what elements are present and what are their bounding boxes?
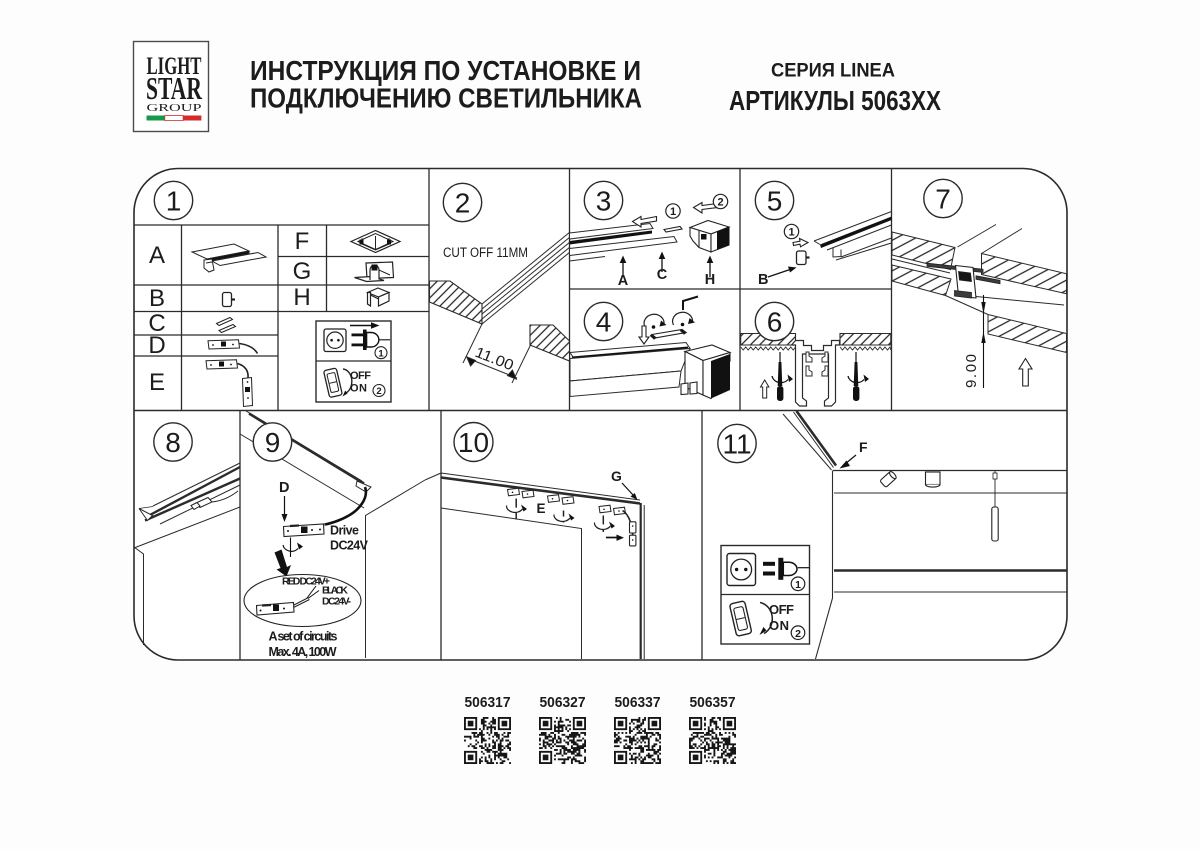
- svg-text:6: 6: [767, 307, 783, 338]
- svg-text:F: F: [859, 439, 868, 455]
- svg-text:DC24V-: DC24V-: [322, 596, 352, 608]
- svg-text:GROUP: GROUP: [147, 102, 202, 114]
- svg-text:506317: 506317: [465, 694, 511, 711]
- svg-text:B: B: [758, 272, 768, 288]
- svg-text:H: H: [293, 284, 310, 311]
- svg-text:E: E: [537, 501, 546, 516]
- svg-text:9: 9: [265, 427, 281, 458]
- svg-text:3: 3: [596, 186, 612, 217]
- svg-text:7: 7: [935, 184, 951, 215]
- svg-text:F: F: [295, 228, 310, 255]
- svg-text:A: A: [618, 273, 629, 289]
- svg-text:9.00: 9.00: [963, 354, 980, 388]
- svg-text:2: 2: [717, 197, 723, 209]
- svg-text:Drive: Drive: [330, 524, 359, 538]
- svg-text:АРТИКУЛЫ 5063ХХ: АРТИКУЛЫ 5063ХХ: [729, 85, 941, 116]
- svg-text:C: C: [657, 267, 668, 283]
- svg-text:OFF: OFF: [769, 602, 794, 617]
- svg-text:D: D: [279, 480, 289, 496]
- svg-text:STAR: STAR: [146, 70, 203, 106]
- svg-text:E: E: [149, 369, 165, 396]
- svg-text:2: 2: [376, 386, 381, 397]
- svg-text:1: 1: [166, 186, 182, 217]
- svg-text:506357: 506357: [690, 694, 736, 711]
- svg-text:G: G: [293, 258, 312, 285]
- svg-text:1: 1: [378, 348, 384, 359]
- svg-text:4: 4: [596, 307, 612, 338]
- svg-text:A: A: [149, 242, 165, 269]
- svg-text:506337: 506337: [615, 694, 661, 711]
- svg-text:2: 2: [795, 628, 801, 640]
- svg-text:ON: ON: [350, 383, 367, 395]
- svg-text:G: G: [611, 468, 622, 484]
- svg-text:H: H: [705, 272, 715, 288]
- svg-text:ПОДКЛЮЧЕНИЮ СВЕТИЛЬНИКА: ПОДКЛЮЧЕНИЮ СВЕТИЛЬНИКА: [250, 83, 642, 114]
- svg-text:2: 2: [455, 188, 471, 219]
- svg-text:506327: 506327: [540, 694, 586, 711]
- svg-text:DC24V: DC24V: [330, 539, 369, 553]
- svg-text:ИНСТРУКЦИЯ ПО УСТАНОВКЕ И: ИНСТРУКЦИЯ ПО УСТАНОВКЕ И: [250, 55, 641, 86]
- svg-text:5: 5: [767, 186, 783, 217]
- svg-text:1: 1: [795, 579, 801, 591]
- svg-text:A set of circuits: A set of circuits: [269, 630, 338, 644]
- svg-text:CUT OFF 11MM: CUT OFF 11MM: [443, 245, 528, 260]
- svg-text:10: 10: [458, 427, 489, 458]
- svg-text:ON: ON: [769, 618, 789, 633]
- svg-text:8: 8: [165, 427, 181, 458]
- svg-text:1: 1: [788, 227, 794, 239]
- svg-text:B: B: [149, 285, 165, 312]
- svg-text:1: 1: [670, 206, 676, 218]
- svg-text:OFF: OFF: [350, 370, 371, 382]
- svg-text:Max. 4A, 100W: Max. 4A, 100W: [269, 645, 337, 659]
- svg-text:11: 11: [722, 429, 751, 460]
- svg-text:СЕРИЯ LINEA: СЕРИЯ LINEA: [771, 61, 895, 82]
- svg-text:D: D: [148, 332, 165, 359]
